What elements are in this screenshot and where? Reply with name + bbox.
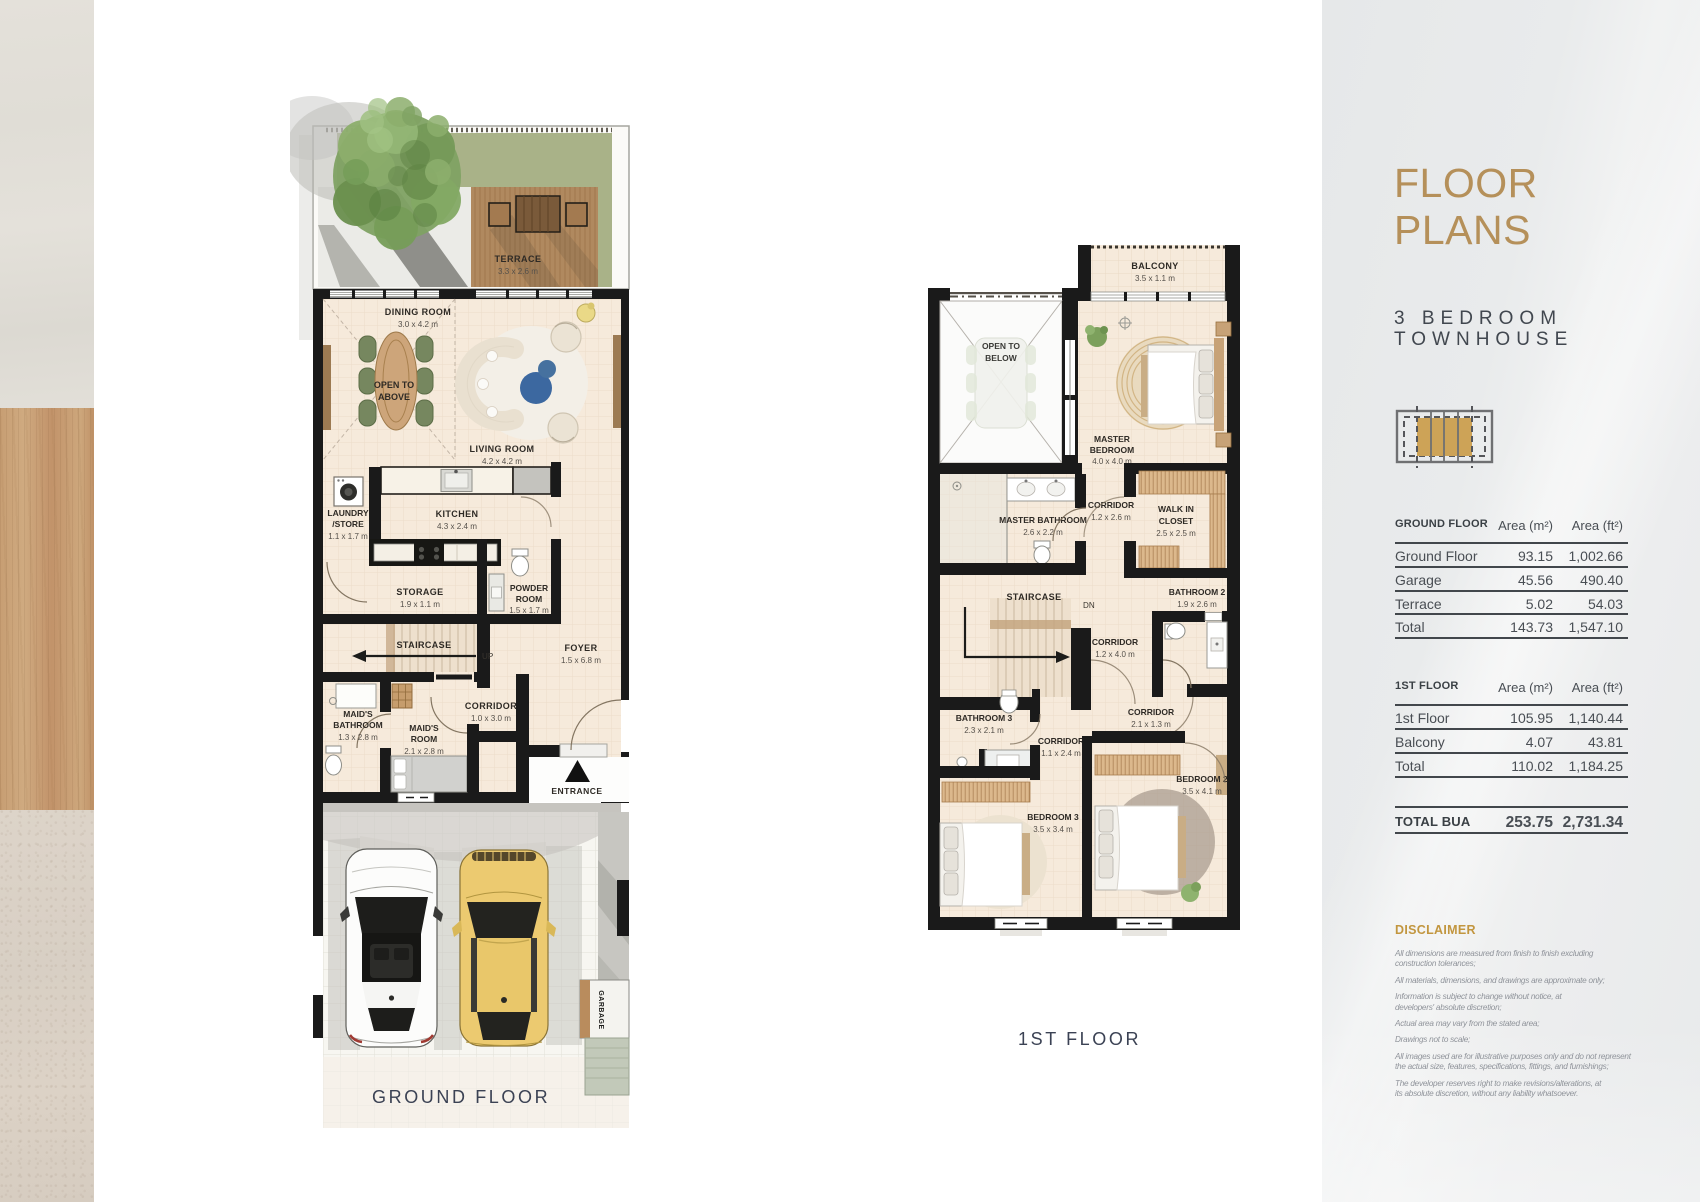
svg-text:CLOSET: CLOSET	[1159, 516, 1194, 526]
svg-text:MASTER BATHROOM: MASTER BATHROOM	[999, 515, 1087, 525]
svg-text:STORAGE: STORAGE	[396, 587, 443, 597]
svg-text:2.5 x 2.5 m: 2.5 x 2.5 m	[1156, 529, 1196, 538]
svg-text:KITCHEN: KITCHEN	[436, 509, 479, 519]
svg-text:BEDROOM 2: BEDROOM 2	[1176, 774, 1228, 784]
svg-text:ENTRANCE: ENTRANCE	[551, 786, 602, 796]
svg-text:ABOVE: ABOVE	[378, 392, 410, 402]
svg-text:3.5 x 4.1 m: 3.5 x 4.1 m	[1182, 787, 1222, 796]
svg-text:CORRIDOR: CORRIDOR	[465, 701, 517, 711]
svg-text:1.5 x 1.7 m: 1.5 x 1.7 m	[509, 606, 549, 615]
svg-text:2.1 x 1.3 m: 2.1 x 1.3 m	[1131, 720, 1171, 729]
svg-text:UP: UP	[482, 652, 493, 661]
svg-text:MASTER: MASTER	[1094, 434, 1130, 444]
svg-text:1.2 x 2.6 m: 1.2 x 2.6 m	[1091, 513, 1131, 522]
svg-text:2.6 x 2.2 m: 2.6 x 2.2 m	[1023, 528, 1063, 537]
svg-text:STAIRCASE: STAIRCASE	[397, 640, 452, 650]
svg-text:CORRIDOR: CORRIDOR	[1128, 707, 1174, 717]
svg-text:1.1 x 2.4 m: 1.1 x 2.4 m	[1041, 749, 1081, 758]
svg-text:BATHROOM 2: BATHROOM 2	[1169, 587, 1226, 597]
svg-text:CORRIDOR: CORRIDOR	[1092, 637, 1138, 647]
svg-text:ROOM: ROOM	[516, 594, 542, 604]
svg-text:1.0 x 3.0 m: 1.0 x 3.0 m	[471, 714, 511, 723]
svg-text:BATHROOM: BATHROOM	[333, 720, 382, 730]
svg-text:BEDROOM: BEDROOM	[1090, 445, 1134, 455]
svg-text:DINING ROOM: DINING ROOM	[385, 307, 451, 317]
svg-text:WALK IN: WALK IN	[1158, 504, 1194, 514]
svg-text:CORRIDOR: CORRIDOR	[1088, 500, 1134, 510]
svg-text:OPEN TO: OPEN TO	[374, 380, 414, 390]
svg-text:ROOM: ROOM	[411, 734, 437, 744]
svg-text:3.3 x 2.6 m: 3.3 x 2.6 m	[498, 267, 538, 276]
svg-text:2.3 x 2.1 m: 2.3 x 2.1 m	[964, 726, 1004, 735]
svg-text:1.9 x 2.6 m: 1.9 x 2.6 m	[1177, 600, 1217, 609]
svg-text:BELOW: BELOW	[985, 353, 1018, 363]
svg-text:STAIRCASE: STAIRCASE	[1007, 592, 1062, 602]
svg-text:3.5 x 1.1 m: 3.5 x 1.1 m	[1135, 274, 1175, 283]
svg-text:BEDROOM 3: BEDROOM 3	[1027, 812, 1079, 822]
svg-text:LAUNDRY: LAUNDRY	[327, 508, 369, 518]
svg-text:1.3 x 2.8 m: 1.3 x 2.8 m	[338, 733, 378, 742]
svg-text:3.0 x 4.2 m: 3.0 x 4.2 m	[398, 320, 438, 329]
svg-text:MAID'S: MAID'S	[409, 723, 439, 733]
svg-text:/STORE: /STORE	[332, 519, 364, 529]
svg-text:TERRACE: TERRACE	[494, 254, 541, 264]
svg-text:BALCONY: BALCONY	[1131, 261, 1178, 271]
svg-text:MAID'S: MAID'S	[343, 709, 373, 719]
svg-text:4.3 x 2.4 m: 4.3 x 2.4 m	[437, 522, 477, 531]
svg-text:2.1 x 2.8 m: 2.1 x 2.8 m	[404, 747, 444, 756]
svg-text:3.5 x 3.4 m: 3.5 x 3.4 m	[1033, 825, 1073, 834]
svg-text:BATHROOM 3: BATHROOM 3	[956, 713, 1013, 723]
svg-text:LIVING ROOM: LIVING ROOM	[470, 444, 535, 454]
svg-text:1.2 x 4.0 m: 1.2 x 4.0 m	[1095, 650, 1135, 659]
svg-text:OPEN TO: OPEN TO	[982, 341, 1020, 351]
svg-text:CORRIDOR: CORRIDOR	[1038, 736, 1084, 746]
svg-text:DN: DN	[1083, 601, 1095, 610]
svg-text:1.5 x 6.8 m: 1.5 x 6.8 m	[561, 656, 601, 665]
svg-text:4.2 x 4.2 m: 4.2 x 4.2 m	[482, 457, 522, 466]
svg-text:POWDER: POWDER	[510, 583, 548, 593]
svg-text:GARBAGE: GARBAGE	[597, 990, 604, 1029]
svg-text:1.1 x 1.7 m: 1.1 x 1.7 m	[328, 532, 368, 541]
svg-text:FOYER: FOYER	[564, 643, 597, 653]
svg-text:1.9 x 1.1 m: 1.9 x 1.1 m	[400, 600, 440, 609]
